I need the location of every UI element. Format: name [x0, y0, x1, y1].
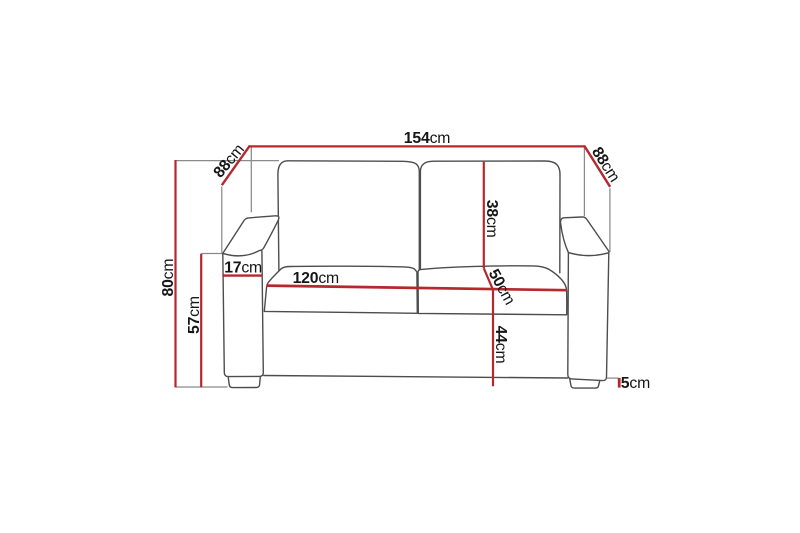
svg-text:154cm: 154cm [404, 130, 450, 147]
svg-text:5cm: 5cm [621, 375, 650, 392]
svg-text:38cm: 38cm [483, 200, 500, 238]
svg-text:120cm: 120cm [293, 270, 339, 287]
svg-text:57cm: 57cm [186, 296, 203, 334]
svg-text:44cm: 44cm [492, 326, 509, 364]
svg-text:17cm: 17cm [224, 259, 262, 276]
svg-text:80cm: 80cm [160, 259, 177, 297]
